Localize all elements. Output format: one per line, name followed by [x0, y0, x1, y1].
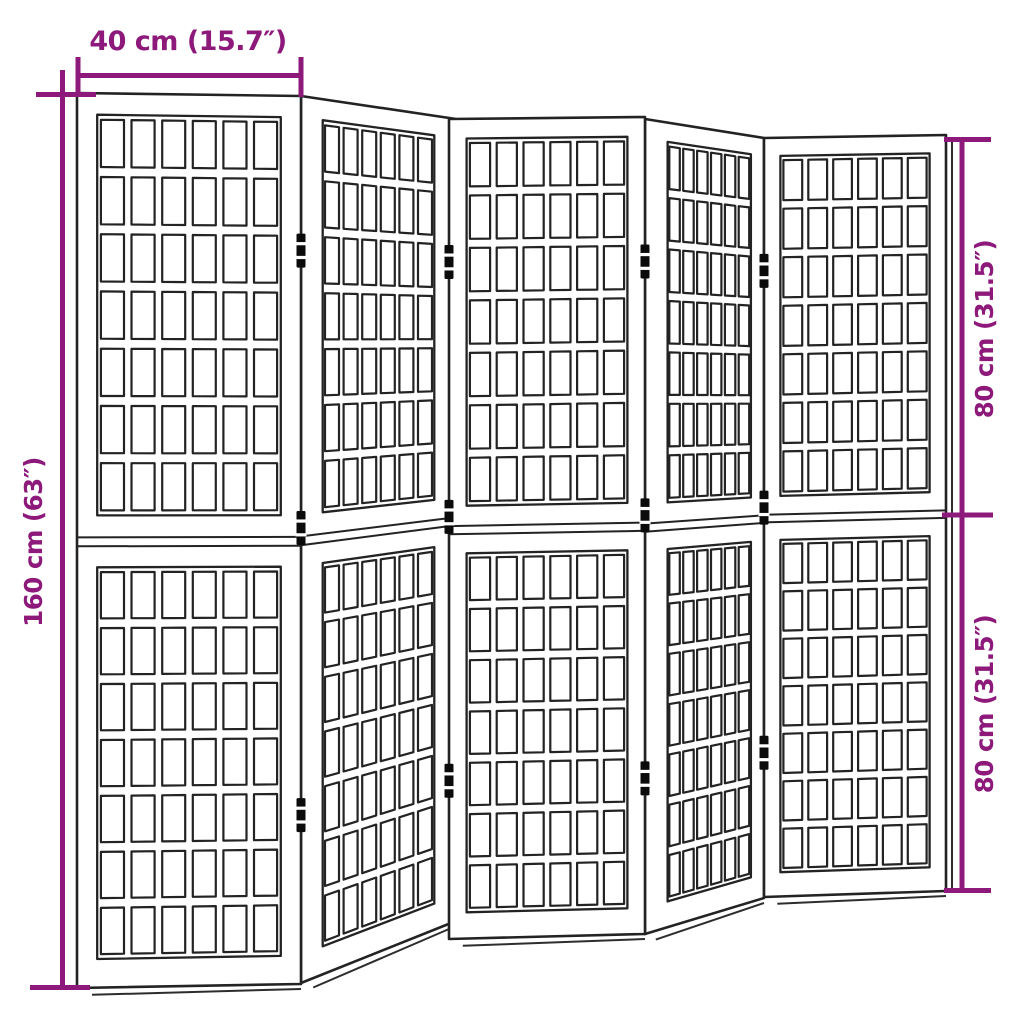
- grid-cell: [669, 198, 680, 242]
- grid-cell: [783, 451, 802, 492]
- grid-cell: [577, 403, 597, 447]
- grid-cell: [883, 255, 902, 295]
- grid-cell: [418, 243, 432, 287]
- grid-cell: [162, 349, 185, 396]
- panel-mid-rail: [77, 546, 301, 547]
- grid-cell: [254, 794, 277, 840]
- grid-cell: [497, 457, 517, 501]
- grid-cell: [883, 730, 902, 770]
- grid-cell: [604, 141, 624, 184]
- grid-cell: [683, 251, 694, 294]
- grid-cell: [325, 181, 339, 228]
- grid-cell: [362, 560, 376, 606]
- grid-cell: [669, 147, 680, 191]
- top-width-label: 40 cm (15.7″): [89, 26, 286, 57]
- grid-cell: [344, 563, 358, 610]
- grid-cell: [418, 552, 432, 597]
- grid-cell: [833, 256, 852, 296]
- grid-cell: [550, 194, 570, 238]
- grid-cell: [604, 298, 624, 342]
- grid-cell: [162, 795, 185, 841]
- grid-cell: [833, 207, 852, 247]
- grid-cell: [497, 300, 517, 344]
- grid-cell: [132, 572, 155, 618]
- grid-cell: [132, 851, 155, 898]
- hinge-body: [760, 491, 769, 525]
- folding-screen-drawing: [77, 93, 952, 995]
- grid-cell: [344, 404, 358, 450]
- grid-cell: [223, 178, 246, 225]
- hinge-slit: [759, 262, 770, 265]
- grid-cell: [101, 234, 124, 282]
- hinge-body: [445, 245, 454, 279]
- grid-cell: [418, 756, 432, 803]
- grid-cell: [497, 659, 517, 702]
- hinge-body: [641, 761, 650, 795]
- grid-cell: [254, 850, 277, 896]
- grid-cell: [223, 906, 246, 952]
- grid-cell: [739, 690, 750, 732]
- grid-cell: [739, 354, 750, 395]
- grid-cell: [524, 608, 544, 651]
- grid-cell: [833, 827, 852, 867]
- grid-cell: [193, 349, 216, 396]
- grid-cell: [883, 207, 902, 247]
- grid-cell: [470, 457, 490, 501]
- grid-cell: [577, 142, 597, 185]
- hinge: [296, 234, 307, 268]
- grid-cell: [101, 852, 124, 899]
- grid-cell: [418, 858, 432, 906]
- grid-cell: [577, 194, 597, 238]
- grid-cell: [604, 862, 624, 905]
- grid-cell: [711, 354, 721, 396]
- grid-cell: [683, 200, 694, 243]
- grid-cell: [739, 738, 750, 780]
- grid-cell: [725, 453, 735, 495]
- grid-cell: [162, 907, 185, 954]
- grid-cell: [908, 255, 927, 295]
- grid-cell: [223, 627, 246, 673]
- grid-cell: [577, 862, 597, 905]
- grid-cell: [418, 654, 432, 700]
- grid-cell: [344, 183, 358, 230]
- hinge: [444, 245, 455, 279]
- grid-cell: [362, 349, 376, 394]
- grid-cell: [399, 348, 413, 392]
- panel-mid-rail: [77, 537, 301, 538]
- grid-cell: [683, 849, 694, 893]
- hinge-slit: [640, 267, 651, 270]
- grid-cell: [697, 201, 708, 244]
- grid-cell: [399, 658, 413, 704]
- grid-cell: [783, 686, 802, 726]
- grid-cell: [577, 246, 597, 289]
- grid-cell: [783, 208, 802, 249]
- grid-cell: [858, 684, 877, 724]
- grid-cell: [193, 292, 216, 339]
- grid-cell: [193, 628, 216, 674]
- grid-cell: [711, 598, 721, 640]
- grid-cell: [711, 841, 721, 884]
- grid-cell: [325, 404, 339, 451]
- grid-cell: [524, 142, 544, 186]
- grid-cell: [497, 405, 517, 449]
- grid-cell: [399, 189, 413, 234]
- grid-cell: [711, 549, 721, 591]
- grid-cell: [193, 178, 216, 225]
- grid-cell: [711, 454, 721, 496]
- hinge-slit: [759, 513, 770, 516]
- grid-cell: [683, 601, 694, 643]
- grid-cell: [697, 648, 708, 690]
- grid-cell: [908, 448, 927, 489]
- grid-cell: [254, 179, 277, 226]
- grid-cell: [697, 845, 708, 889]
- grid-cell: [470, 762, 490, 805]
- grid-cell: [470, 557, 490, 600]
- grid-cell: [604, 657, 624, 700]
- grid-cell: [399, 813, 413, 861]
- grid-cell: [883, 778, 902, 818]
- grid-cell: [725, 254, 735, 296]
- grid-cell: [132, 907, 155, 954]
- grid-cell: [550, 607, 570, 650]
- grid-cell: [162, 683, 185, 729]
- grid-cell: [470, 353, 490, 397]
- grid-cell: [669, 552, 680, 595]
- hinge-slit: [444, 772, 455, 775]
- hinge-slit: [759, 744, 770, 747]
- hinge-slit: [296, 807, 307, 810]
- grid-cell: [223, 794, 246, 840]
- grid-cell: [325, 460, 339, 507]
- grid-cell: [497, 864, 517, 907]
- grid-cell: [325, 620, 339, 668]
- grid-cell: [711, 744, 721, 787]
- grid-cell: [550, 812, 570, 855]
- grid-cell: [833, 450, 852, 491]
- grid-cell: [193, 463, 216, 510]
- hinge-slit: [296, 820, 307, 823]
- grid-cell: [908, 730, 927, 770]
- grid-cell: [725, 547, 735, 588]
- grid-cell: [725, 644, 735, 686]
- grid-cell: [739, 546, 750, 587]
- grid-cell: [683, 302, 694, 345]
- grid-cell: [725, 354, 735, 395]
- grid-cell: [399, 761, 413, 808]
- grid-cell: [193, 906, 216, 953]
- grid-cell: [833, 304, 852, 345]
- grid-cell: [344, 349, 358, 395]
- grid-cell: [550, 556, 570, 599]
- grid-cell: [344, 670, 358, 718]
- grid-cell: [524, 761, 544, 804]
- grid-cell: [858, 207, 877, 247]
- grid-cell: [858, 589, 877, 629]
- grid-cell: [254, 463, 277, 510]
- hinge-body: [297, 798, 306, 832]
- grid-cell: [908, 635, 927, 675]
- hinge-body: [760, 254, 769, 288]
- grid-cell: [162, 628, 185, 674]
- hinge-slit: [640, 770, 651, 773]
- grid-cell: [223, 683, 246, 729]
- grid-cell: [418, 453, 432, 498]
- grid-cell: [254, 122, 277, 169]
- grid-cell: [381, 819, 395, 867]
- hinge: [296, 798, 307, 832]
- grid-cell: [325, 293, 339, 339]
- hinge: [640, 244, 651, 278]
- grid-cell: [132, 795, 155, 841]
- grid-cell: [808, 159, 827, 199]
- grid-cell: [725, 789, 735, 832]
- hinge-body: [297, 234, 306, 268]
- grid-cell: [783, 781, 802, 821]
- grid-cell: [418, 705, 432, 751]
- grid-cell: [497, 711, 517, 754]
- grid-cell: [808, 450, 827, 491]
- grid-cell: [381, 295, 395, 340]
- grid-cell: [223, 292, 246, 339]
- grid-cell: [669, 702, 680, 745]
- grid-cell: [470, 660, 490, 703]
- grid-cell: [711, 404, 721, 446]
- grid-cell: [381, 241, 395, 286]
- grid-cell: [883, 352, 902, 393]
- grid-cell: [101, 291, 124, 339]
- grid-cell: [524, 659, 544, 702]
- grid-cell: [344, 128, 358, 175]
- grid-cell: [362, 666, 376, 713]
- grid-cell: [808, 733, 827, 773]
- grid-cell: [669, 404, 680, 447]
- grid-cell: [669, 602, 680, 645]
- grid-cell: [577, 299, 597, 343]
- grid-cell: [697, 796, 708, 839]
- grid-cell: [908, 351, 927, 391]
- grid-cell: [577, 760, 597, 803]
- grid-cell: [101, 740, 124, 786]
- grid-cell: [381, 349, 395, 394]
- grid-cell: [254, 349, 277, 396]
- grid-cell: [362, 294, 376, 339]
- grid-cell: [858, 352, 877, 393]
- grid-cell: [550, 299, 570, 343]
- grid-cell: [783, 354, 802, 395]
- grid-cell: [833, 401, 852, 442]
- grid-cell: [604, 759, 624, 802]
- grid-cell: [550, 658, 570, 701]
- grid-cell: [883, 449, 902, 490]
- grid-cell: [697, 252, 708, 295]
- hinge-slit: [444, 522, 455, 525]
- grid-cell: [325, 125, 339, 173]
- hinge-body: [641, 244, 650, 278]
- grid-cell: [162, 739, 185, 785]
- grid-cell: [783, 160, 802, 200]
- grid-cell: [908, 540, 927, 580]
- grid-cell: [883, 158, 902, 198]
- grid-cell: [418, 348, 432, 392]
- grid-cell: [725, 596, 735, 638]
- grid-cell: [858, 401, 877, 442]
- grid-cell: [223, 235, 246, 282]
- grid-cell: [604, 555, 624, 598]
- grid-cell: [254, 683, 277, 729]
- hinge-slit: [444, 267, 455, 270]
- grid-cell: [524, 352, 544, 396]
- grid-cell: [783, 591, 802, 631]
- grid-cell: [833, 732, 852, 772]
- grid-cell: [739, 256, 750, 298]
- grid-cell: [381, 766, 395, 814]
- panel-thickness-edge: [777, 896, 946, 904]
- grid-cell: [418, 400, 432, 444]
- grid-cell: [683, 700, 694, 743]
- grid-cell: [669, 352, 680, 395]
- grid-cell: [344, 294, 358, 340]
- hinge-slit: [444, 253, 455, 256]
- panel-thickness-edge: [92, 989, 301, 995]
- grid-cell: [362, 240, 376, 286]
- grid-cell: [683, 404, 694, 446]
- grid-cell: [497, 608, 517, 651]
- grid-cell: [604, 811, 624, 854]
- grid-cell: [577, 607, 597, 650]
- grid-cell: [418, 138, 432, 183]
- grid-cell: [470, 248, 490, 292]
- hinge-slit: [759, 499, 770, 502]
- grid-cell: [683, 551, 694, 593]
- grid-cell: [711, 695, 721, 737]
- hinge-slit: [759, 758, 770, 761]
- grid-cell: [550, 247, 570, 291]
- grid-cell: [399, 135, 413, 181]
- grid-cell: [725, 304, 735, 346]
- grid-cell: [132, 292, 155, 339]
- grid-cell: [497, 557, 517, 600]
- grid-cell: [577, 456, 597, 500]
- grid-cell: [399, 295, 413, 339]
- grid-cell: [193, 683, 216, 729]
- grid-cell: [362, 825, 376, 874]
- grid-cell: [381, 610, 395, 656]
- grid-cell: [101, 120, 124, 168]
- grid-cell: [162, 292, 185, 339]
- grid-cell: [550, 863, 570, 906]
- grid-cell: [399, 555, 413, 600]
- grid-cell: [577, 351, 597, 395]
- grid-cell: [739, 305, 750, 346]
- grid-cell: [711, 303, 721, 345]
- grid-cell: [470, 405, 490, 449]
- grid-cell: [193, 739, 216, 785]
- grid-cell: [399, 606, 413, 652]
- hinge-slit: [296, 242, 307, 245]
- screen-panel-1: [77, 93, 301, 995]
- grid-cell: [683, 799, 694, 843]
- grid-cell: [711, 203, 721, 246]
- grid-cell: [858, 778, 877, 818]
- grid-cell: [381, 557, 395, 603]
- hinge: [759, 254, 770, 288]
- grid-cell: [132, 628, 155, 674]
- grid-cell: [325, 728, 339, 777]
- grid-cell: [683, 455, 694, 498]
- grid-cell: [725, 404, 735, 445]
- hinge-slit: [640, 253, 651, 256]
- grid-cell: [604, 351, 624, 395]
- grid-cell: [808, 402, 827, 443]
- grid-cell: [162, 235, 185, 282]
- grid-cell: [908, 824, 927, 864]
- grid-cell: [739, 206, 750, 248]
- grid-cell: [908, 777, 927, 817]
- grid-cell: [669, 752, 680, 796]
- grid-cell: [101, 177, 124, 225]
- room-divider-diagram: 40 cm (15.7″) 160 cm (63″) 80 cm (31.5″)…: [0, 0, 1024, 1024]
- grid-cell: [325, 891, 339, 941]
- grid-cell: [833, 353, 852, 394]
- grid-cell: [132, 684, 155, 730]
- grid-cell: [470, 300, 490, 344]
- grid-cell: [381, 456, 395, 502]
- grid-cell: [711, 153, 721, 196]
- grid-cell: [883, 303, 902, 343]
- grid-cell: [725, 205, 735, 247]
- hinge-slit: [296, 256, 307, 259]
- grid-cell: [524, 812, 544, 855]
- grid-cell: [132, 463, 155, 510]
- grid-cell: [604, 194, 624, 238]
- grid-cell: [223, 572, 246, 618]
- grid-cell: [858, 542, 877, 582]
- grid-cell: [399, 401, 413, 446]
- grid-cell: [362, 719, 376, 767]
- grid-cell: [604, 246, 624, 290]
- grid-cell: [381, 402, 395, 447]
- grid-cell: [858, 449, 877, 490]
- grid-cell: [577, 811, 597, 854]
- hinge: [759, 491, 770, 525]
- grid-cell: [858, 159, 877, 199]
- grid-cell: [669, 301, 680, 344]
- hinge-slit: [296, 533, 307, 536]
- grid-cell: [908, 588, 927, 628]
- grid-cell: [697, 353, 708, 395]
- hinge-slit: [640, 784, 651, 787]
- grid-cell: [101, 796, 124, 843]
- grid-cell: [223, 349, 246, 396]
- hinge: [296, 511, 307, 545]
- grid-cell: [101, 684, 124, 730]
- hinge: [759, 736, 770, 770]
- grid-cell: [697, 454, 708, 496]
- grid-cell: [418, 603, 432, 648]
- grid-cell: [908, 158, 927, 198]
- grid-cell: [362, 772, 376, 820]
- hinge-slit: [640, 521, 651, 524]
- grid-cell: [132, 406, 155, 453]
- grid-cell: [344, 458, 358, 505]
- grid-cell: [101, 572, 124, 618]
- grid-cell: [697, 697, 708, 740]
- grid-cell: [739, 786, 750, 828]
- grid-cell: [783, 828, 802, 868]
